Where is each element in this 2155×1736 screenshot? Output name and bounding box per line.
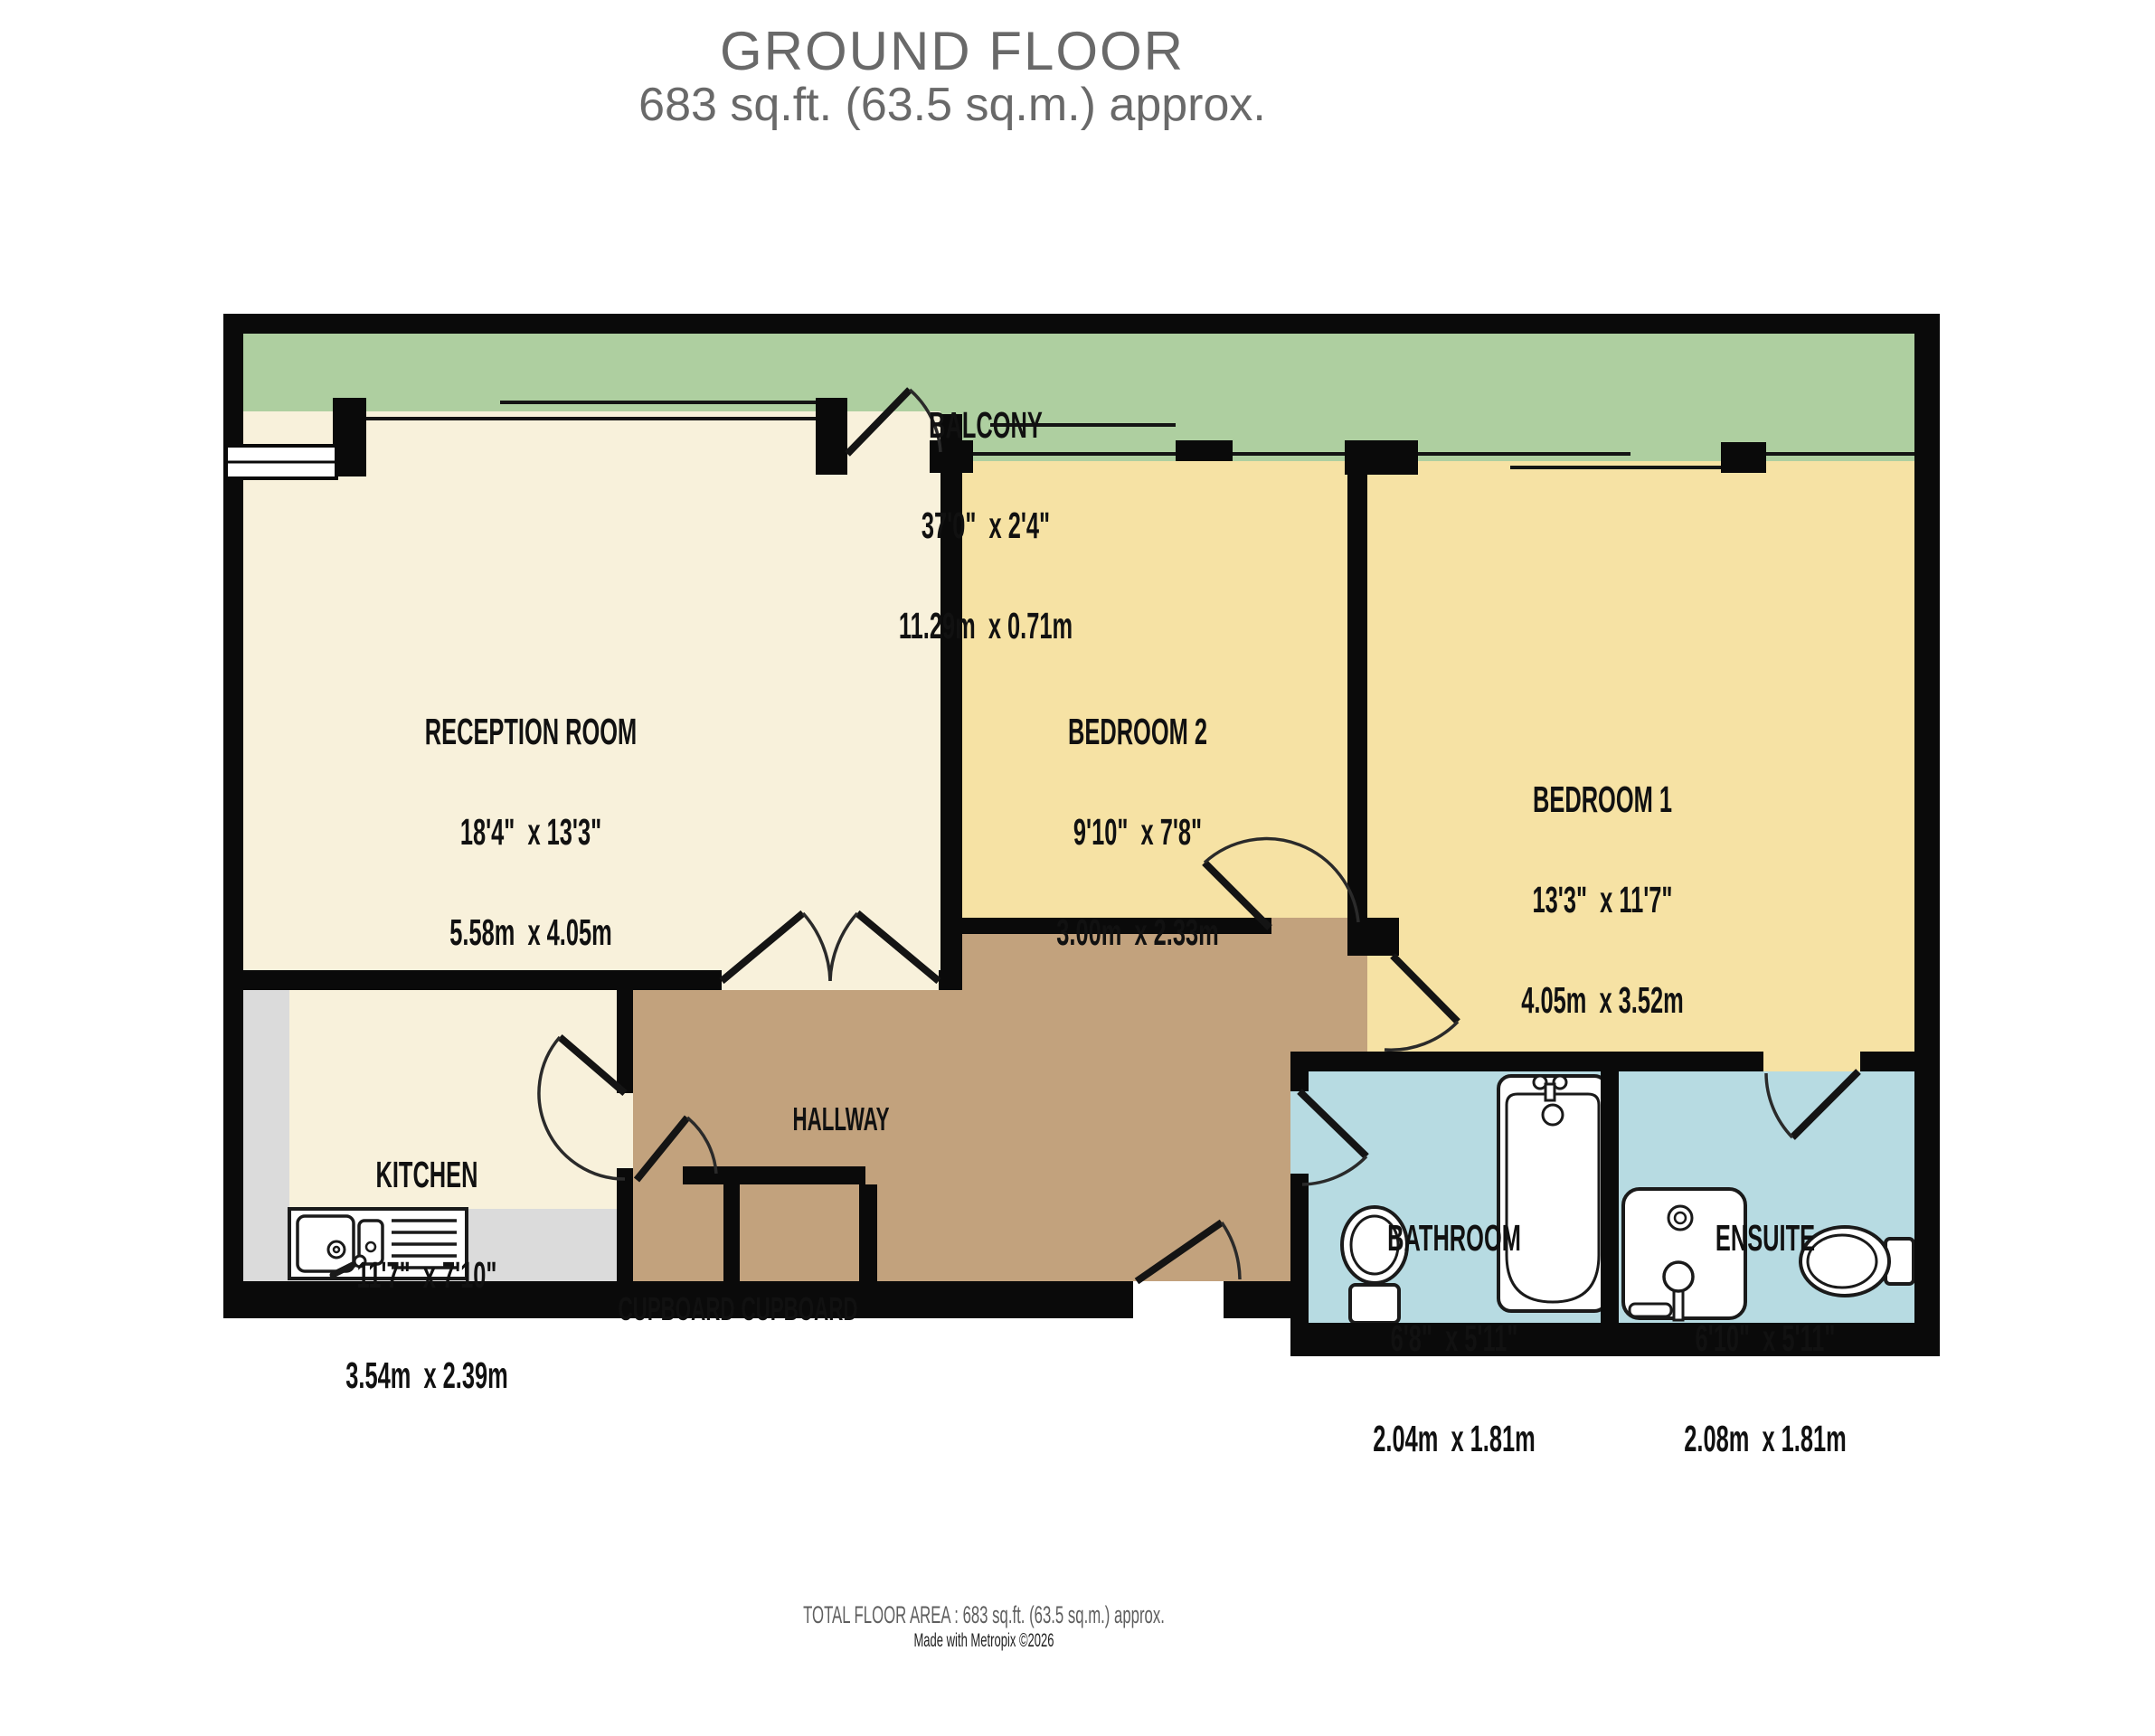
- wall-bedroom2-bedroom1: [1347, 457, 1367, 934]
- reception-dims-metric: 5.58m x 4.05m: [425, 916, 637, 949]
- balcony-boundary-4: [1766, 452, 1914, 456]
- reception-name: RECEPTION ROOM: [425, 715, 637, 749]
- bathroom-name: BATHROOM: [1373, 1222, 1535, 1255]
- pillar-balcony-door: [816, 398, 847, 475]
- reception-slider-panel: [500, 401, 817, 404]
- bedroom1-name: BEDROOM 1: [1521, 783, 1683, 816]
- room-label-bedroom1: BEDROOM 1 13'3" x 11'7" 4.05m x 3.52m: [1521, 716, 1683, 1084]
- balcony-boundary-3: [1418, 452, 1630, 456]
- ensuite-dims-imperial: 6'10" x 5'11": [1684, 1322, 1846, 1355]
- wall-right: [1914, 314, 1940, 1356]
- total-floor-area: TOTAL FLOOR AREA : 683 sq.ft. (63.5 sq.m…: [803, 1600, 1165, 1629]
- balcony-dims-metric: 11.29m x 0.71m: [899, 609, 1073, 643]
- bathroom-dims-imperial: 6'8" x 5'11": [1373, 1322, 1535, 1355]
- kitchen-dims-metric: 3.54m x 2.39m: [345, 1359, 507, 1392]
- kitchen-dims-imperial: 11'7" x 7'10": [345, 1259, 507, 1292]
- balcony-dims-imperial: 37'0" x 2'4": [899, 509, 1073, 542]
- sink-drain-dot: [334, 1247, 339, 1252]
- balcony-boundary-2: [1233, 452, 1347, 456]
- wall-bottom-mid: [1224, 1281, 1309, 1318]
- wall-bath-ensuite: [1601, 1071, 1619, 1323]
- ensuite-name: ENSUITE: [1684, 1222, 1846, 1255]
- kitchen-name: KITCHEN: [345, 1158, 507, 1192]
- bedroom1-door-threshold: [1347, 956, 1367, 1052]
- pillar-bedrooms-top: [1345, 440, 1418, 475]
- balcony-window: [226, 446, 336, 478]
- room-label-bedroom2: BEDROOM 2 9'10" x 7'8" 3.00m x 2.33m: [1056, 648, 1218, 1016]
- bedroom2-dims-metric: 3.00m x 2.33m: [1056, 916, 1218, 949]
- cupboard-left-name: CUPBOARD: [619, 1292, 735, 1326]
- wall-bath-left-stub: [1290, 1071, 1309, 1091]
- room-label-balcony: BALCONY 37'0" x 2'4" 11.29m x 0.71m: [899, 342, 1073, 710]
- reception-dims-imperial: 18'4" x 13'3": [425, 816, 637, 849]
- pillar-bedroom1-balcony: [1721, 442, 1766, 473]
- room-label-reception: RECEPTION ROOM 18'4" x 13'3" 5.58m x 4.0…: [425, 648, 637, 1016]
- bedroom2-name: BEDROOM 2: [1056, 715, 1218, 749]
- kitchen-door-threshold: [617, 1093, 633, 1168]
- bathroom-dims-metric: 2.04m x 1.81m: [1373, 1422, 1535, 1456]
- pillar-bedrooms-bottom: [1347, 918, 1399, 956]
- bathtub-overflow: [1543, 1105, 1563, 1125]
- bedroom1-dims-imperial: 13'3" x 11'7": [1521, 883, 1683, 917]
- bedroom2-door-threshold: [1270, 918, 1356, 934]
- room-label-hallway: HALLWAY: [792, 1035, 889, 1203]
- bathtub-spout: [1545, 1084, 1555, 1100]
- metropix-credit: Made with Metropix ©2026: [803, 1629, 1165, 1653]
- plan-footer: TOTAL FLOOR AREA : 683 sq.ft. (63.5 sq.m…: [693, 1600, 1276, 1653]
- bedroom1-slider-panel: [1510, 466, 1721, 469]
- pillar-balcony-mid: [1176, 440, 1233, 461]
- wall-top: [223, 314, 1940, 334]
- balcony-floor: [242, 333, 1914, 411]
- room-label-cupboard-left: CUPBOARD: [619, 1225, 735, 1392]
- ensuite-dims-metric: 2.08m x 1.81m: [1684, 1422, 1846, 1456]
- ensuite-door-threshold: [1763, 1052, 1860, 1071]
- shower-step: [1630, 1304, 1671, 1316]
- room-label-kitchen: KITCHEN 11'7" x 7'10" 3.54m x 2.39m: [345, 1091, 507, 1459]
- balcony-name: BALCONY: [899, 409, 1073, 442]
- room-label-bathroom: BATHROOM 6'8" x 5'11" 2.04m x 1.81m: [1373, 1155, 1535, 1523]
- floorplan-page: GROUND FLOOR 683 sq.ft. (63.5 sq.m.) app…: [0, 0, 2155, 1736]
- wall-bath-top-right: [1860, 1052, 1914, 1071]
- room-label-ensuite: ENSUITE 6'10" x 5'11" 2.08m x 1.81m: [1684, 1155, 1846, 1523]
- reception-balcony-track: [366, 417, 816, 420]
- cupboard-right-name: CUPBOARD: [742, 1292, 858, 1326]
- hallway-name: HALLWAY: [792, 1102, 889, 1136]
- bedroom2-dims-imperial: 9'10" x 7'8": [1056, 816, 1218, 849]
- bedroom1-dims-metric: 4.05m x 3.52m: [1521, 984, 1683, 1017]
- room-label-cupboard-right: CUPBOARD: [742, 1225, 858, 1392]
